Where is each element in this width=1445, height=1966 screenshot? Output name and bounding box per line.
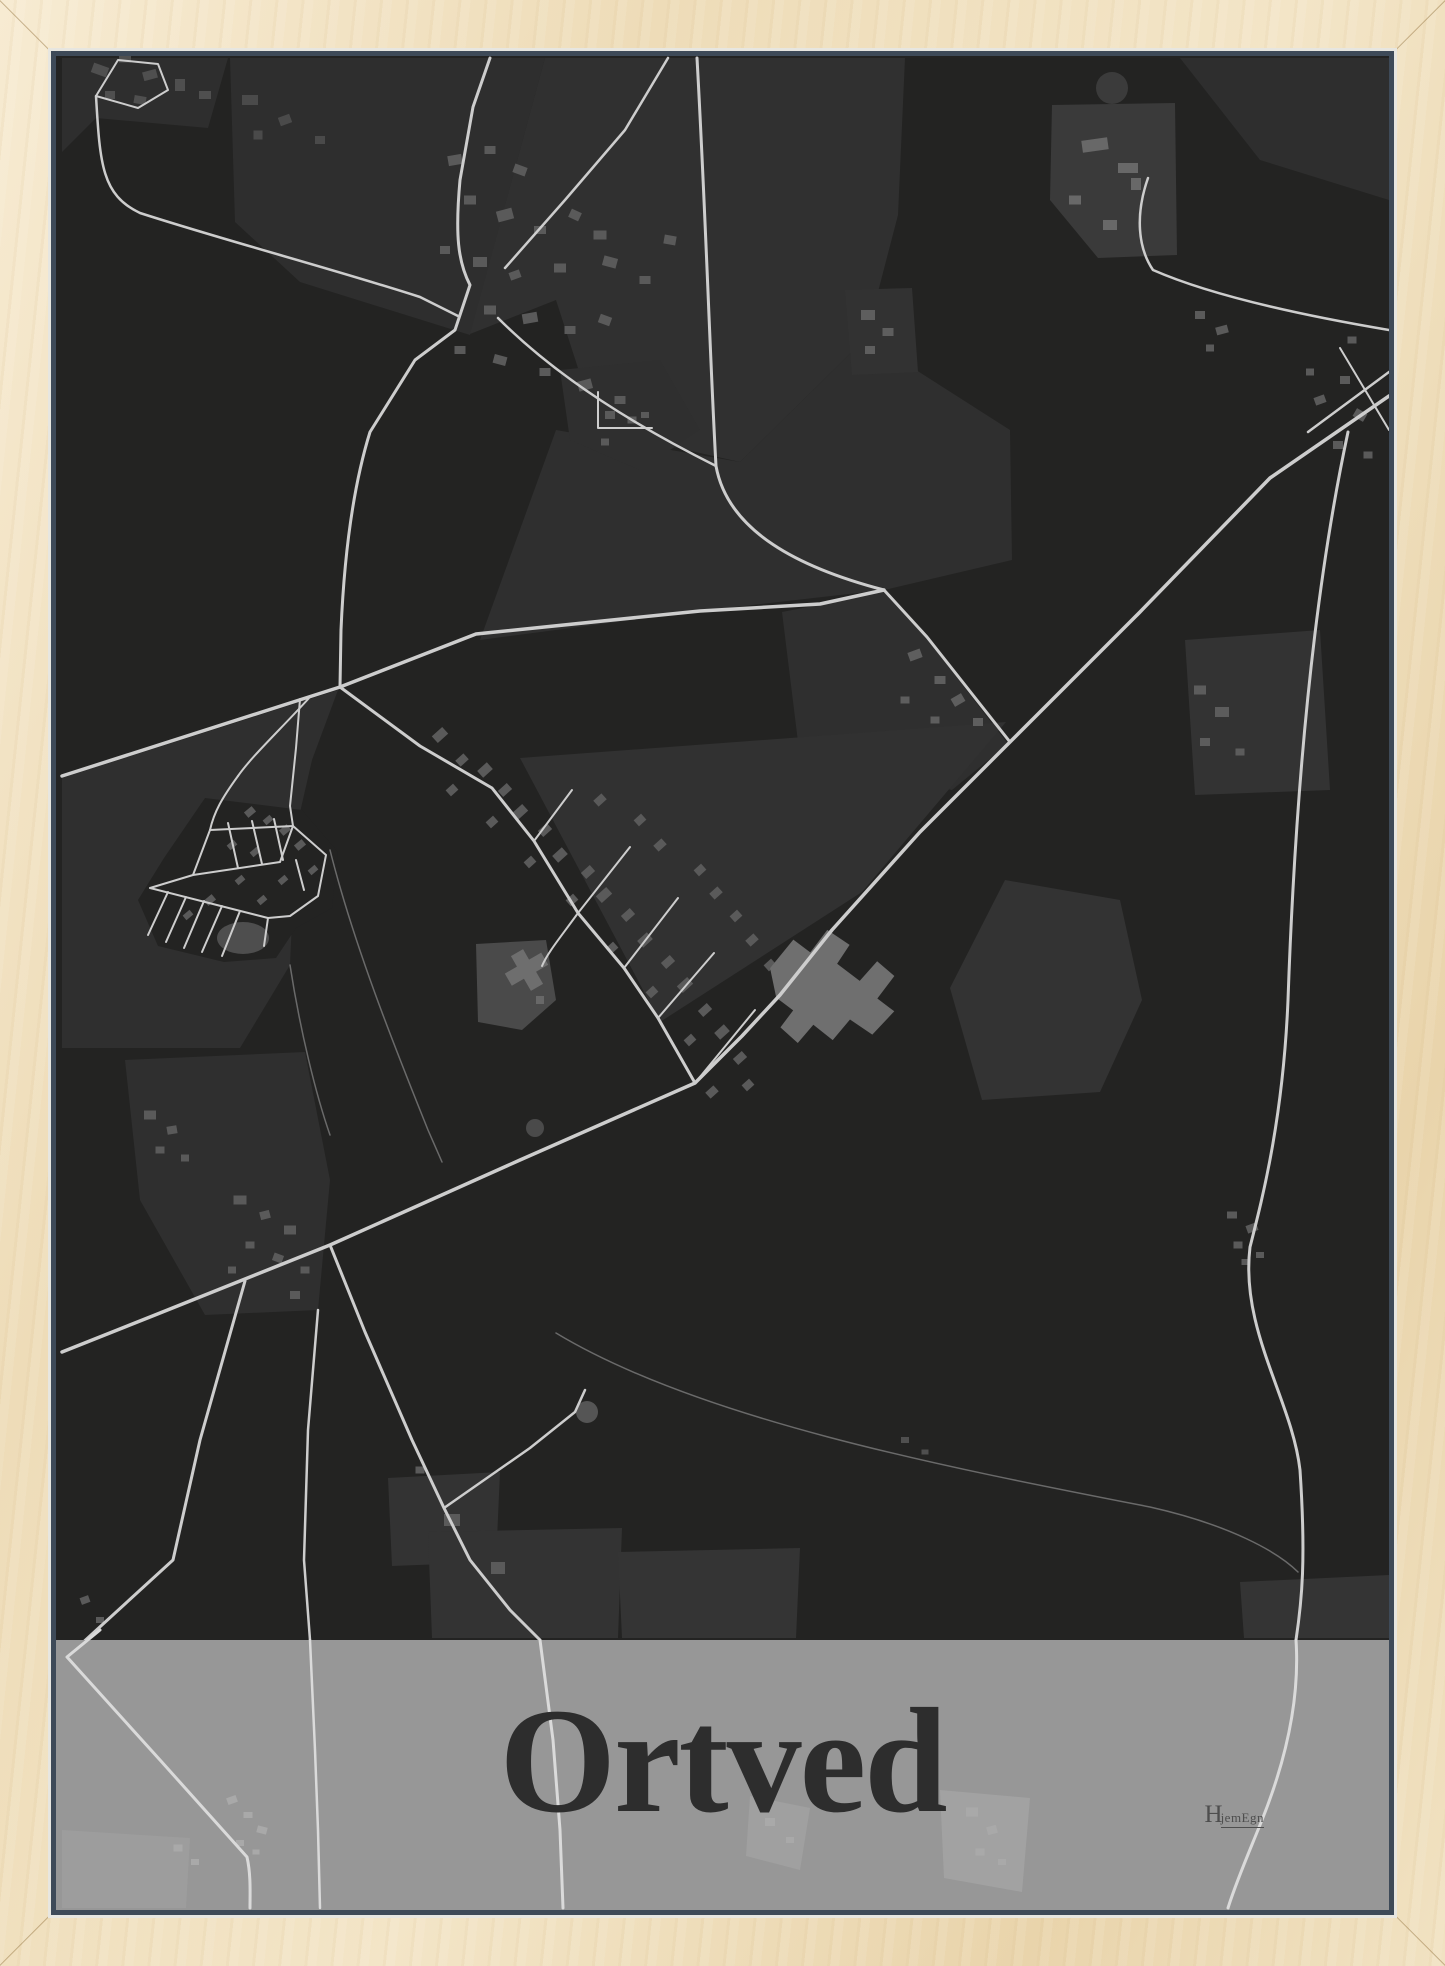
map-poster: Ortved HjemEgn [56,56,1389,1910]
town-map [56,56,1389,1910]
brand-rest: jemEgn [1221,1810,1264,1828]
brand-initial: H [1205,1801,1223,1828]
brand-logo: HjemEgn [1205,1802,1265,1827]
title-band-layer [56,1630,1389,1910]
framed-map-poster: Ortved HjemEgn [0,0,1445,1966]
